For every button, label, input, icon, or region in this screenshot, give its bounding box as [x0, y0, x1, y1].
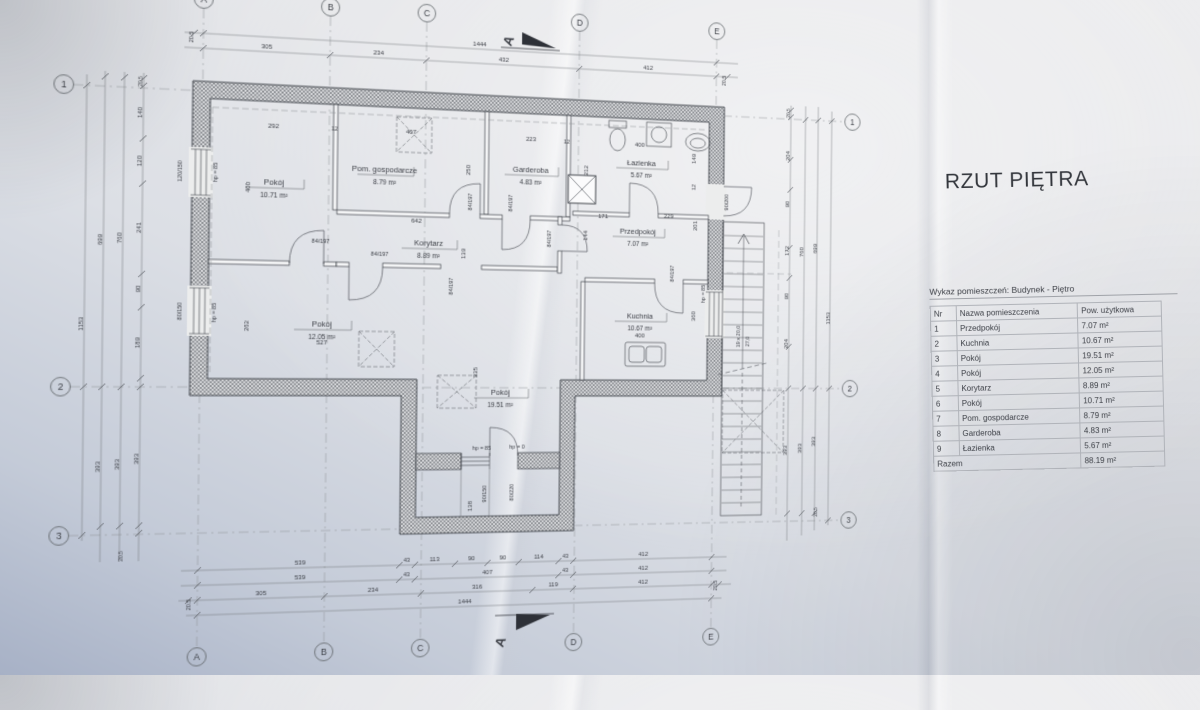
stair-treads — [721, 235, 763, 502]
dim-label: 20.5 — [787, 108, 792, 118]
dimension-line — [82, 74, 87, 541]
grid-bubble-label: D — [577, 18, 583, 28]
grid-bubble-label: E — [708, 632, 714, 642]
dim-label: 393 — [782, 445, 788, 455]
grid-bubble-label: 1 — [61, 79, 67, 90]
table-cell: 3 — [931, 351, 957, 367]
door-swing — [502, 219, 530, 250]
floor-plan-photo: { "photo": { "title": "RZUT PIĘTRA" }, "… — [0, 0, 1200, 675]
grid-bubble-label: A — [201, 0, 208, 5]
partition-wall — [557, 251, 561, 273]
dim-label: 12 — [692, 184, 698, 190]
dim-label: 120 — [136, 155, 144, 167]
door-swing — [490, 427, 518, 456]
dim-label: 114 — [534, 554, 544, 561]
dim-label: 229 — [664, 213, 674, 220]
dim-label: 12 — [331, 126, 338, 132]
door-swing — [449, 183, 480, 215]
dim-label: 84/197 — [468, 193, 474, 210]
walls — [185, 81, 728, 539]
room-area-label: 10.67 m² — [627, 326, 652, 333]
partition-wall — [209, 259, 290, 265]
dim-label: 84/197 — [449, 278, 455, 295]
dim-label: 642 — [411, 218, 422, 225]
skylight-x — [359, 331, 395, 367]
dim-label: 43 — [403, 558, 409, 564]
room-name-label: Pokój — [312, 319, 332, 328]
dim-label: 393 — [133, 453, 141, 464]
table-caption: Wykaz pomieszczeń: Budynek - Piętro — [929, 281, 1177, 300]
dim-label: 201 — [692, 220, 698, 231]
dim-label: 412 — [638, 579, 648, 586]
dim-label: 393 — [114, 459, 122, 470]
dim-label: 407 — [406, 129, 417, 136]
partition-wall — [481, 265, 557, 271]
dim-label: 120/150 — [178, 160, 185, 181]
dim-label: 20.5 — [722, 75, 728, 86]
dim-label: 84/197 — [670, 265, 676, 282]
wall-stub — [416, 453, 461, 470]
dim-label: 212 — [583, 165, 590, 176]
dim-label: 20.5 — [189, 31, 196, 43]
dim-label: 139 — [460, 248, 467, 259]
grid-bubble-label: 3 — [56, 531, 62, 542]
door-swing — [654, 283, 683, 313]
grid-axis-line — [573, 32, 579, 633]
stairs — [717, 222, 768, 516]
dim-label: 204 — [785, 150, 791, 160]
dim-label: 316 — [472, 584, 483, 591]
grid-bubble-label: 1 — [850, 118, 854, 127]
room-area-label: 19.51 m² — [487, 402, 514, 409]
dimension-line — [186, 598, 721, 616]
dim-label: 144 — [583, 230, 590, 241]
dim-label: 90 — [468, 555, 475, 562]
grid-bubble-label: 2 — [58, 382, 64, 393]
dim-label: 84/197 — [312, 239, 330, 246]
partition-wall — [383, 263, 441, 268]
dim-label: 113 — [430, 556, 440, 563]
dim-label: 1153 — [825, 312, 831, 325]
dim-label: 84/197 — [508, 195, 514, 212]
dimension-line — [184, 47, 737, 77]
dimension-line — [787, 106, 791, 541]
dim-label: 90 — [499, 554, 506, 561]
room-area-label: 8.79 m² — [373, 179, 397, 187]
dimension-line — [119, 72, 124, 562]
wall-stub — [518, 452, 560, 469]
dim-label: 393 — [94, 461, 102, 472]
table-cell: 8 — [933, 426, 959, 442]
chimney-shaft — [568, 175, 596, 204]
table-cell: 6 — [932, 396, 958, 412]
dim-label: hp = 85 — [472, 446, 491, 452]
dim-label: 90 — [785, 200, 791, 207]
dim-label: 1444 — [458, 598, 472, 605]
dim-label: 760 — [116, 232, 124, 244]
dim-label: 223 — [526, 136, 537, 143]
dim-label: 407 — [482, 569, 493, 576]
window — [461, 453, 490, 470]
dim-label: 250 — [465, 164, 472, 175]
section-marker-bottom: A — [492, 613, 554, 650]
dim-label: 84/197 — [547, 230, 553, 247]
dim-label: 1153 — [77, 316, 85, 331]
stair-walkline — [742, 236, 743, 369]
table-cell: 9 — [933, 441, 959, 457]
toilet-icon — [610, 128, 626, 151]
dim-label: 90 — [784, 293, 790, 300]
grid-bubble-label: B — [321, 647, 327, 657]
washer-icon — [651, 126, 666, 143]
table-cell: 5 — [932, 381, 958, 397]
kitchen-sink-icon — [629, 346, 645, 362]
partition-wall — [484, 112, 489, 215]
dim-label: 393 — [811, 436, 817, 446]
dim-label: 189 — [134, 337, 142, 348]
dim-label: 80/220 — [509, 484, 515, 501]
dim-label: 234 — [368, 587, 379, 594]
room-name-label: Pokój — [264, 177, 285, 187]
col-header-nr: Nr — [930, 306, 956, 322]
room-labels: Pokój10.71 m²Pom. gospodarcze8.79 m²Gard… — [243, 143, 668, 409]
dim-label: 84/197 — [371, 252, 389, 258]
room-area-label: 12.05 m² — [308, 334, 336, 341]
room-schedule: Wykaz pomieszczeń: Budynek - Piętro Nr N… — [929, 281, 1181, 472]
dim-label: 204 — [783, 338, 789, 348]
skylight-x — [437, 375, 476, 408]
door-swing — [629, 183, 658, 214]
dim-label: 20.5 — [814, 507, 819, 517]
dim-label: 241 — [135, 222, 143, 234]
dim-label: 80/150 — [177, 302, 184, 320]
grid-bubble-label: A — [193, 652, 200, 663]
dim-label: 171 — [598, 213, 608, 220]
stair-walkline — [741, 373, 742, 510]
grid-bubble-label: 2 — [848, 384, 852, 393]
total-label: Razem — [934, 453, 1082, 471]
room-name-label: Pokój — [491, 388, 510, 397]
room-area-label: 4.83 m² — [520, 179, 543, 187]
dim-label: 20.5 — [713, 580, 719, 591]
dimension-line — [814, 107, 818, 530]
rooms-table: Nr Nazwa pomieszczenia Pow. użytkowa 1Pr… — [930, 301, 1166, 472]
partition-wall — [480, 214, 502, 219]
dim-label: 12 — [564, 140, 570, 146]
grid-bubble-label: C — [424, 8, 431, 18]
dim-label: 138 — [467, 500, 474, 511]
partition-wall — [580, 282, 585, 380]
grid-bubble-label: D — [570, 637, 576, 647]
door-swing — [289, 230, 324, 264]
dim-label: 19 x 20,0 — [736, 325, 742, 347]
room-name-label: Garderoba — [513, 165, 549, 175]
title-block-panel: RZUT PIĘTRA Wykaz pomieszczeń: Budynek -… — [927, 165, 1182, 472]
dim-label: 412 — [638, 551, 648, 558]
dim-label: 90/200 — [725, 194, 731, 211]
kitchen-sink-icon — [625, 342, 666, 366]
dim-label: 172 — [784, 245, 790, 255]
room-area-label: 10.71 m² — [260, 192, 289, 200]
section-letter: A — [492, 635, 509, 649]
partition-wall — [558, 217, 562, 225]
partition-wall — [530, 216, 570, 221]
table-cell: 2 — [931, 336, 957, 352]
dim-label: 90 — [135, 285, 143, 293]
grid-bubble-label: B — [328, 2, 334, 12]
dim-label: hp = 85 — [213, 162, 220, 182]
dim-label: 90/150 — [482, 485, 488, 502]
room-name-label: Przedpokój — [620, 227, 656, 237]
dimension-line — [100, 71, 105, 562]
dim-label: 305 — [261, 43, 272, 51]
dimension-line — [138, 73, 143, 561]
dim-label: 20.5 — [138, 76, 145, 87]
partition-wall — [336, 262, 349, 266]
room-name-label: Korytarz — [414, 238, 443, 248]
dim-label: 1444 — [473, 41, 487, 49]
dim-label: hp = 85 — [211, 303, 218, 323]
dim-label: 262 — [243, 320, 250, 331]
grid-bubble-label: 3 — [846, 515, 850, 524]
dim-label: 400 — [635, 333, 645, 340]
partition-wall — [585, 278, 655, 283]
dim-label: 393 — [797, 443, 803, 453]
dim-label: 20.5 — [186, 599, 193, 611]
partition-wall — [324, 262, 337, 266]
dimension-line — [801, 106, 805, 535]
dim-label: 412 — [643, 65, 653, 72]
section-letter: A — [500, 33, 517, 48]
dim-label: 699 — [97, 234, 105, 246]
dim-label: 400 — [635, 142, 645, 149]
dim-label: 760 — [799, 247, 805, 257]
section-marker-top: A — [500, 31, 560, 51]
room-area-label: 8.89 m² — [417, 253, 440, 260]
dim-label: 234 — [373, 49, 384, 57]
dim-label: 539 — [295, 559, 306, 566]
total-value: 88.19 m² — [1081, 451, 1165, 468]
room-name-label: Łazienka — [627, 158, 657, 168]
dim-label: 43 — [562, 554, 568, 560]
kitchen-sink-icon — [646, 346, 661, 362]
dim-label: 20.5 — [118, 551, 125, 562]
roof-dash-lines — [724, 229, 792, 518]
partition-wall — [683, 280, 708, 284]
dim-label: 43 — [403, 572, 409, 578]
dim-label: 412 — [638, 565, 648, 572]
dim-label: 149 — [691, 153, 697, 164]
room-area-label: 5.67 m² — [631, 172, 653, 180]
outer-wall — [188, 81, 725, 539]
table-cell: 1 — [931, 321, 957, 337]
dim-label: 27,0 — [746, 336, 751, 346]
dim-label: 360 — [691, 311, 697, 321]
partition-wall — [337, 210, 450, 218]
grid-bubble-label: E — [714, 26, 720, 36]
skylight-x — [722, 390, 784, 453]
dim-label: 305 — [255, 590, 267, 597]
grid-axis-line — [420, 22, 426, 638]
washbasin-icon — [690, 138, 705, 148]
door-opening — [706, 184, 727, 220]
dim-label: 539 — [295, 574, 306, 581]
grid-bubble-label: C — [417, 643, 424, 653]
page-title: RZUT PIĘTRA — [945, 165, 1175, 194]
dim-label: 292 — [268, 123, 279, 131]
washer-icon — [646, 122, 671, 147]
door-swing — [349, 267, 383, 301]
washbasin-icon — [685, 133, 710, 152]
table-cell: 4 — [932, 366, 958, 382]
partition-wall — [333, 104, 338, 210]
room-area-label: 7.07 m² — [627, 241, 649, 248]
grid-axis-line — [324, 17, 331, 643]
dim-label: 140 — [137, 106, 145, 118]
table-cell: 7 — [933, 411, 959, 427]
room-name-label: Pom. gospodarcze — [352, 164, 417, 175]
dim-label: 699 — [813, 243, 819, 253]
dim-label: 119 — [549, 581, 559, 588]
dim-label: hp = 0 — [509, 445, 524, 451]
toilet-icon — [609, 120, 627, 128]
dim-label: 335 — [472, 367, 479, 378]
dim-label: 43 — [562, 568, 568, 574]
room-name-label: Kuchnia — [627, 312, 654, 321]
dim-label: 432 — [499, 56, 510, 63]
dim-label: hp = 85 — [701, 285, 707, 303]
